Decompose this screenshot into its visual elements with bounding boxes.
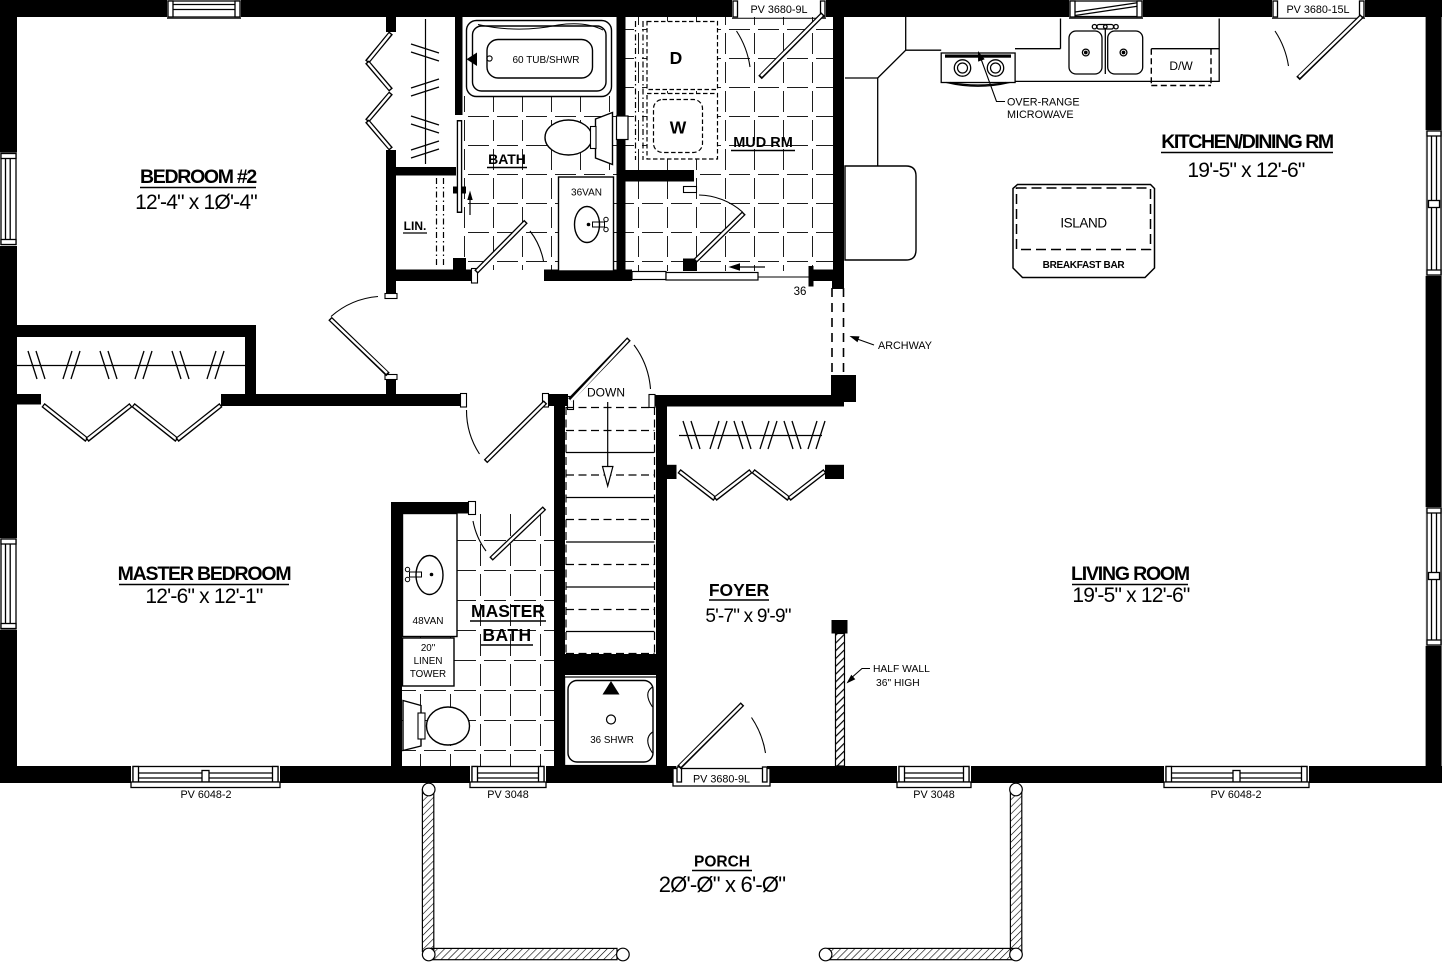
svg-text:36VAN: 36VAN (571, 188, 602, 199)
svg-text:PV 3048: PV 3048 (913, 789, 954, 801)
svg-text:36 SHWR: 36 SHWR (590, 735, 634, 746)
svg-text:D/W: D/W (1169, 59, 1193, 73)
svg-text:BATH: BATH (488, 151, 526, 167)
svg-text:36" HIGH: 36" HIGH (876, 678, 920, 689)
svg-text:FOYER: FOYER (709, 580, 770, 600)
svg-text:OVER-RANGE: OVER-RANGE (1007, 97, 1080, 109)
svg-text:PV 3680-9L: PV 3680-9L (693, 774, 750, 786)
svg-text:BATH: BATH (482, 625, 531, 645)
svg-text:MASTER: MASTER (471, 601, 545, 621)
svg-text:12'-6" x 12'-1": 12'-6" x 12'-1" (145, 585, 263, 608)
svg-text:MUD RM: MUD RM (733, 135, 793, 151)
svg-text:MASTER BEDROOM: MASTER BEDROOM (118, 563, 291, 585)
svg-text:LINEN: LINEN (414, 656, 443, 667)
svg-text:BEDROOM #2: BEDROOM #2 (140, 166, 257, 188)
svg-text:5'-7" x 9'-9": 5'-7" x 9'-9" (705, 606, 790, 627)
svg-text:BREAKFAST BAR: BREAKFAST BAR (1043, 260, 1126, 271)
svg-text:TOWER: TOWER (410, 669, 446, 680)
svg-text:PORCH: PORCH (694, 854, 750, 871)
svg-text:36: 36 (794, 286, 807, 298)
svg-text:PV 3680-15L: PV 3680-15L (1286, 4, 1349, 16)
svg-text:DOWN: DOWN (587, 386, 625, 400)
svg-text:19'-5" x 12'-6": 19'-5" x 12'-6" (1072, 584, 1190, 607)
svg-text:PV 6048-2: PV 6048-2 (180, 789, 231, 801)
svg-text:PV 6048-2: PV 6048-2 (1210, 789, 1261, 801)
svg-text:KITCHEN/DINING RM: KITCHEN/DINING RM (1161, 131, 1333, 153)
svg-text:ARCHWAY: ARCHWAY (878, 340, 932, 352)
svg-text:12'-4" x 1Ø'-4": 12'-4" x 1Ø'-4" (135, 191, 257, 214)
svg-text:LIN.: LIN. (404, 219, 427, 233)
svg-text:2Ø'-Ø" x 6'-Ø": 2Ø'-Ø" x 6'-Ø" (659, 872, 786, 897)
svg-text:D: D (670, 48, 683, 68)
svg-text:19'-5" x 12'-6": 19'-5" x 12'-6" (1187, 159, 1305, 182)
svg-text:MICROWAVE: MICROWAVE (1007, 109, 1074, 121)
svg-text:PV 3048: PV 3048 (487, 789, 528, 801)
svg-text:LIVING ROOM: LIVING ROOM (1071, 563, 1189, 585)
svg-text:HALF WALL: HALF WALL (873, 664, 930, 675)
svg-text:48VAN: 48VAN (413, 616, 444, 627)
svg-text:20": 20" (421, 643, 436, 654)
svg-text:PV 3680-9L: PV 3680-9L (750, 4, 807, 16)
svg-text:ISLAND: ISLAND (1060, 216, 1107, 231)
svg-text:60 TUB/SHWR: 60 TUB/SHWR (512, 55, 579, 66)
svg-text:W: W (670, 118, 687, 138)
